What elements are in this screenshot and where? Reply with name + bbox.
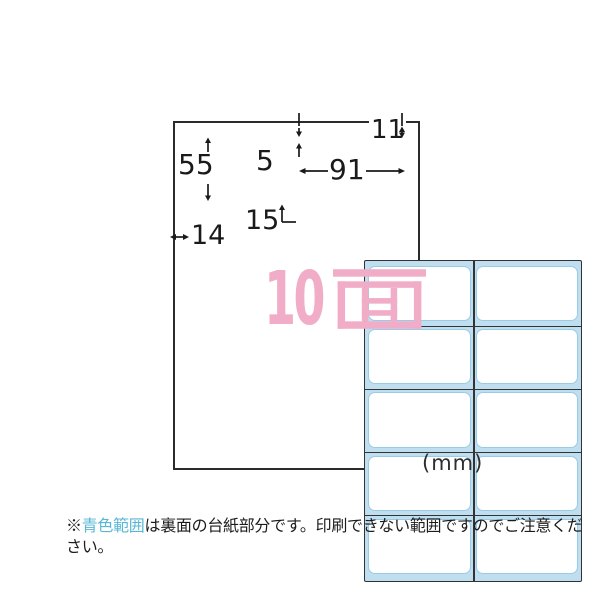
- dim-label-label-width: 91: [329, 156, 365, 184]
- product-diagram-canvas: 10 11 55 5 91 15 14 (mm): [0, 0, 600, 600]
- dim-label-label-height: 55: [178, 151, 214, 179]
- dim-label-left-margin: 14: [191, 222, 225, 250]
- label-cell: [368, 392, 471, 447]
- face-count-number: 10: [264, 270, 323, 328]
- note-prefix: ※: [66, 518, 82, 535]
- label-cell: [476, 266, 579, 321]
- label-cell: [476, 392, 579, 447]
- dim-label-row-inset: 15: [245, 207, 279, 235]
- label-cell: [476, 456, 579, 511]
- label-cell: [368, 329, 471, 384]
- face-count-label: 10: [228, 269, 426, 329]
- unit-mm-label: (mm): [422, 451, 483, 475]
- dim-label-top-margin: 11: [369, 116, 406, 144]
- dim-label-top-inset: 5: [256, 147, 274, 175]
- label-cell: [476, 329, 579, 384]
- men-kanji-glyph: [333, 269, 426, 329]
- note-text: ※青色範囲は裏面の台紙部分です。印刷できない範囲ですのでご注意ください。: [66, 516, 586, 558]
- note-highlight: 青色範囲: [82, 518, 145, 535]
